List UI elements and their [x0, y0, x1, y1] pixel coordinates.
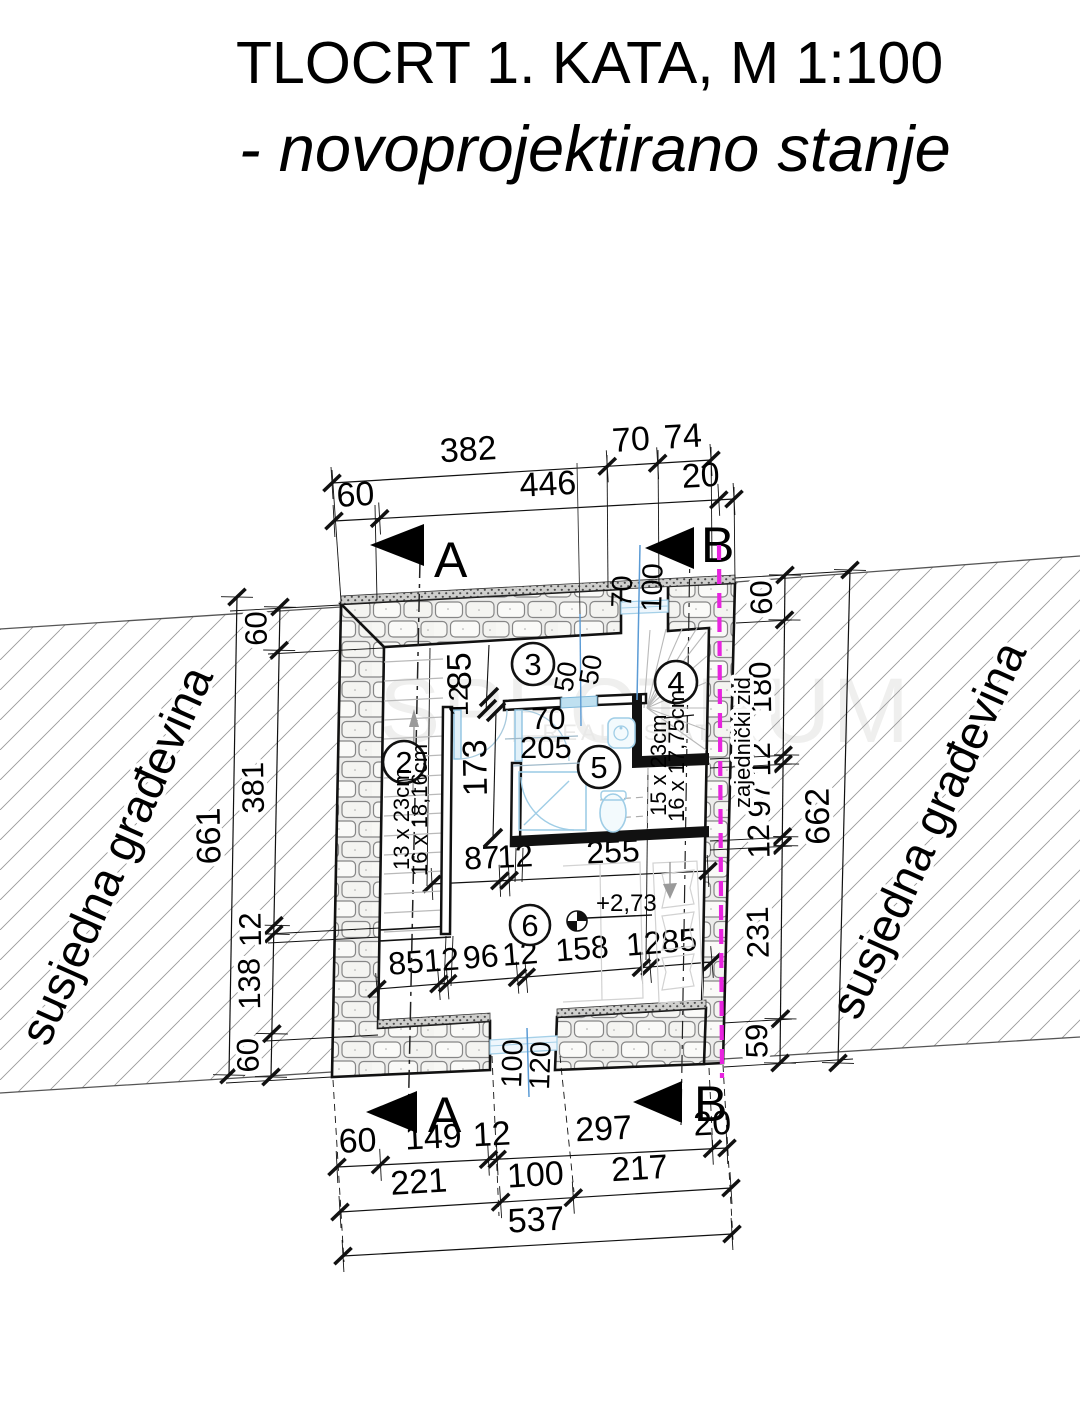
svg-text:59: 59	[739, 1023, 775, 1058]
svg-text:537: 537	[507, 1199, 566, 1240]
svg-text:381: 381	[235, 762, 271, 814]
svg-text:231: 231	[740, 906, 776, 958]
svg-text:60: 60	[335, 475, 375, 515]
svg-text:446: 446	[518, 464, 577, 505]
svg-text:60: 60	[238, 611, 274, 646]
svg-text:6: 6	[521, 908, 538, 943]
svg-text:60: 60	[338, 1121, 378, 1161]
svg-text:12: 12	[233, 912, 269, 947]
svg-text:12: 12	[422, 940, 460, 979]
svg-text:662: 662	[799, 788, 838, 845]
svg-text:TLOCRT 1. KATA, M 1:100: TLOCRT 1. KATA, M 1:100	[236, 30, 943, 96]
svg-text:87: 87	[463, 839, 500, 877]
svg-text:B: B	[701, 517, 734, 573]
svg-text:70: 70	[606, 575, 639, 608]
svg-text:16 x 17,75cm: 16 x 17,75cm	[664, 690, 689, 822]
svg-text:221: 221	[389, 1161, 448, 1202]
svg-text:5: 5	[590, 750, 607, 785]
svg-text:60: 60	[230, 1038, 266, 1073]
svg-text:60: 60	[744, 580, 780, 615]
svg-text:100: 100	[636, 563, 670, 612]
svg-text:661: 661	[190, 807, 229, 864]
svg-text:B: B	[694, 1076, 727, 1132]
svg-text:120: 120	[524, 1041, 558, 1090]
svg-text:3: 3	[524, 647, 541, 682]
svg-text:297: 297	[574, 1109, 633, 1150]
svg-text:50: 50	[573, 652, 608, 687]
svg-text:74: 74	[663, 417, 703, 457]
svg-text:138: 138	[231, 958, 267, 1010]
svg-text:20: 20	[681, 456, 721, 496]
svg-text:12: 12	[472, 1115, 512, 1155]
svg-text:zajednički zid: zajednički zid	[730, 677, 755, 808]
svg-text:100: 100	[506, 1154, 565, 1195]
svg-text:205: 205	[520, 730, 572, 765]
svg-text:70: 70	[611, 420, 651, 460]
svg-text:12: 12	[741, 824, 777, 859]
svg-text:A: A	[434, 532, 468, 588]
svg-text:85: 85	[440, 652, 479, 690]
svg-text:16 x 18,16cm: 16 x 18,16cm	[407, 744, 432, 876]
svg-text:96: 96	[462, 937, 500, 976]
svg-text:+2,73: +2,73	[596, 890, 657, 917]
svg-text:173: 173	[456, 739, 495, 796]
svg-text:217: 217	[610, 1148, 669, 1189]
svg-text:A: A	[428, 1087, 462, 1143]
svg-text:85: 85	[387, 943, 425, 982]
svg-text:12: 12	[443, 686, 474, 717]
svg-text:382: 382	[439, 429, 498, 470]
svg-text:- novoprojektirano stanje: - novoprojektirano stanje	[239, 112, 951, 185]
